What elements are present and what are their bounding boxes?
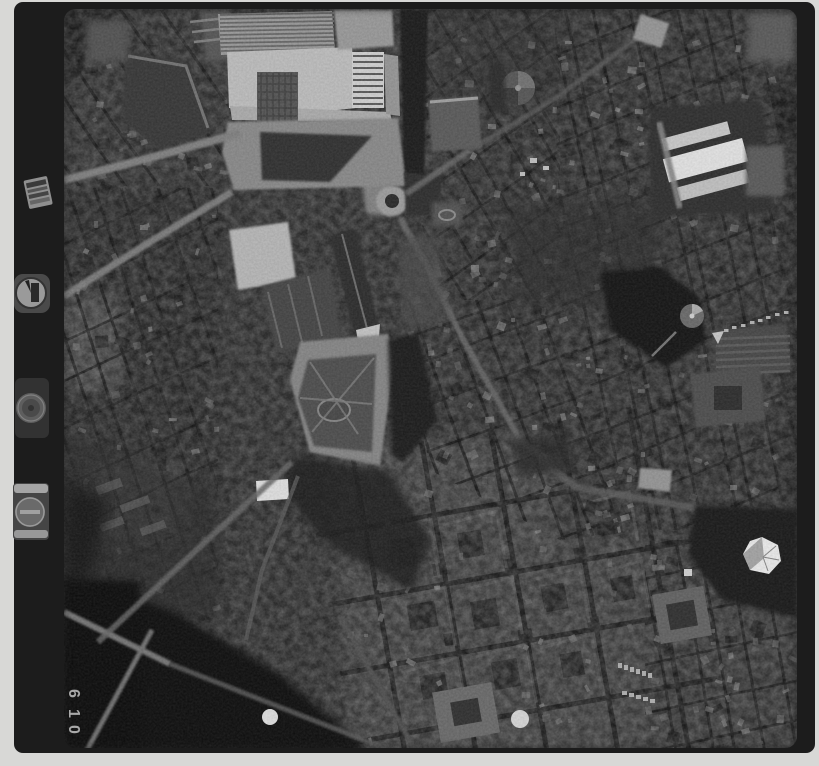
svg-text:6: 6 <box>65 689 82 698</box>
svg-text:0: 0 <box>65 725 82 734</box>
svg-text:1: 1 <box>65 709 82 718</box>
